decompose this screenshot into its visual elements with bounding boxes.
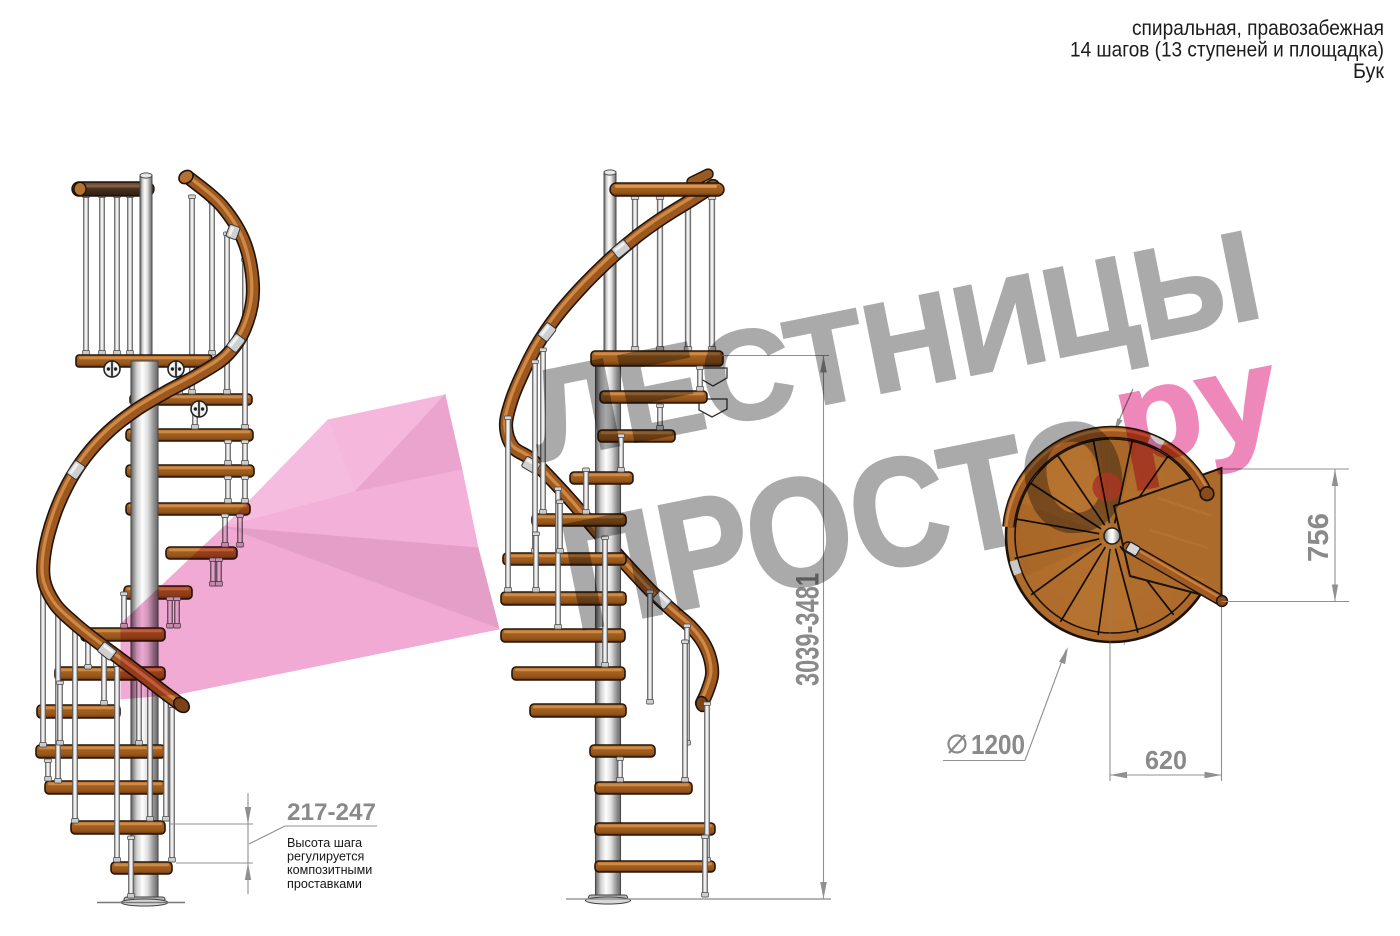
svg-text:14 шагов (13 ступеней и площад: 14 шагов (13 ступеней и площадка) (1070, 38, 1384, 62)
svg-text:регулируется: регулируется (287, 850, 364, 864)
svg-text:Высота шага: Высота шага (287, 836, 362, 850)
svg-text:756: 756 (1303, 513, 1335, 562)
svg-text:композитными: композитными (287, 863, 372, 877)
svg-text:620: 620 (1145, 745, 1187, 775)
svg-text:проставками: проставками (287, 877, 362, 891)
svg-text:217-247: 217-247 (287, 799, 376, 826)
svg-text:спиральная, правозабежная: спиральная, правозабежная (1132, 16, 1384, 40)
svg-text:ру: ру (1102, 318, 1290, 492)
svg-text:Бук: Бук (1353, 59, 1385, 83)
svg-text:1200: 1200 (971, 729, 1025, 760)
